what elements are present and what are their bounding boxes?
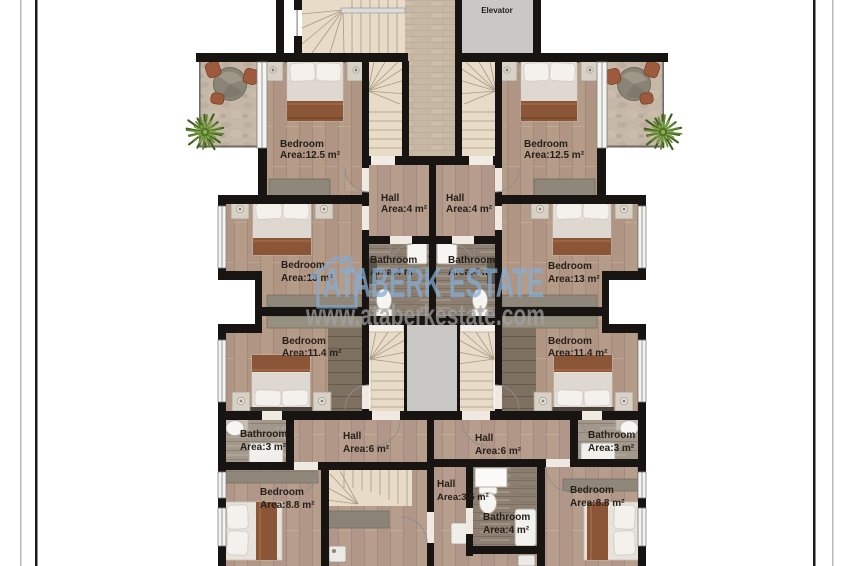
svg-text:Area:12.5 m²: Area:12.5 m² bbox=[524, 150, 585, 161]
svg-text:Hall: Hall bbox=[475, 433, 494, 444]
svg-text:Area:3 m²: Area:3 m² bbox=[588, 443, 635, 454]
svg-text:Bedroom: Bedroom bbox=[548, 261, 592, 272]
svg-text:Area:3.5 m²: Area:3.5 m² bbox=[437, 492, 489, 503]
svg-text:Hall: Hall bbox=[381, 193, 400, 204]
svg-text:Hall: Hall bbox=[437, 479, 456, 490]
svg-text:Area:3 m²: Area:3 m² bbox=[240, 442, 287, 453]
svg-text:Area:8.8 m²: Area:8.8 m² bbox=[260, 500, 315, 511]
svg-text:Bathroom: Bathroom bbox=[483, 512, 530, 523]
svg-text:Bathroom: Bathroom bbox=[240, 429, 287, 440]
svg-text:Area:11.4 m²: Area:11.4 m² bbox=[282, 348, 342, 359]
svg-text:www.ataberkestate.com: www.ataberkestate.com bbox=[305, 299, 545, 332]
svg-text:Area:6 m²: Area:6 m² bbox=[475, 446, 522, 457]
svg-text:Bathroom: Bathroom bbox=[588, 430, 635, 441]
svg-text:Bedroom: Bedroom bbox=[282, 336, 326, 347]
svg-text:Hall: Hall bbox=[446, 193, 465, 204]
svg-text:Bedroom: Bedroom bbox=[548, 336, 592, 347]
svg-text:Bedroom: Bedroom bbox=[260, 487, 304, 498]
svg-text:Area:11.4 m²: Area:11.4 m² bbox=[548, 348, 608, 359]
svg-text:Bedroom: Bedroom bbox=[281, 260, 325, 271]
svg-text:Bedroom: Bedroom bbox=[280, 139, 324, 150]
svg-text:Hall: Hall bbox=[343, 431, 362, 442]
svg-text:Area:6 m²: Area:6 m² bbox=[343, 444, 390, 455]
svg-text:Area:4 m²: Area:4 m² bbox=[381, 204, 428, 215]
svg-text:Area:13 m²: Area:13 m² bbox=[548, 274, 600, 285]
svg-text:Area:4 m²: Area:4 m² bbox=[446, 204, 493, 215]
svg-text:Elevator: Elevator bbox=[481, 6, 513, 15]
svg-text:Bedroom: Bedroom bbox=[524, 139, 568, 150]
svg-text:Bedroom: Bedroom bbox=[570, 485, 614, 496]
svg-text:Area:4 m²: Area:4 m² bbox=[483, 525, 530, 536]
svg-text:Area:8.8 m²: Area:8.8 m² bbox=[570, 498, 625, 509]
svg-text:Area:12.5 m²: Area:12.5 m² bbox=[280, 150, 341, 161]
